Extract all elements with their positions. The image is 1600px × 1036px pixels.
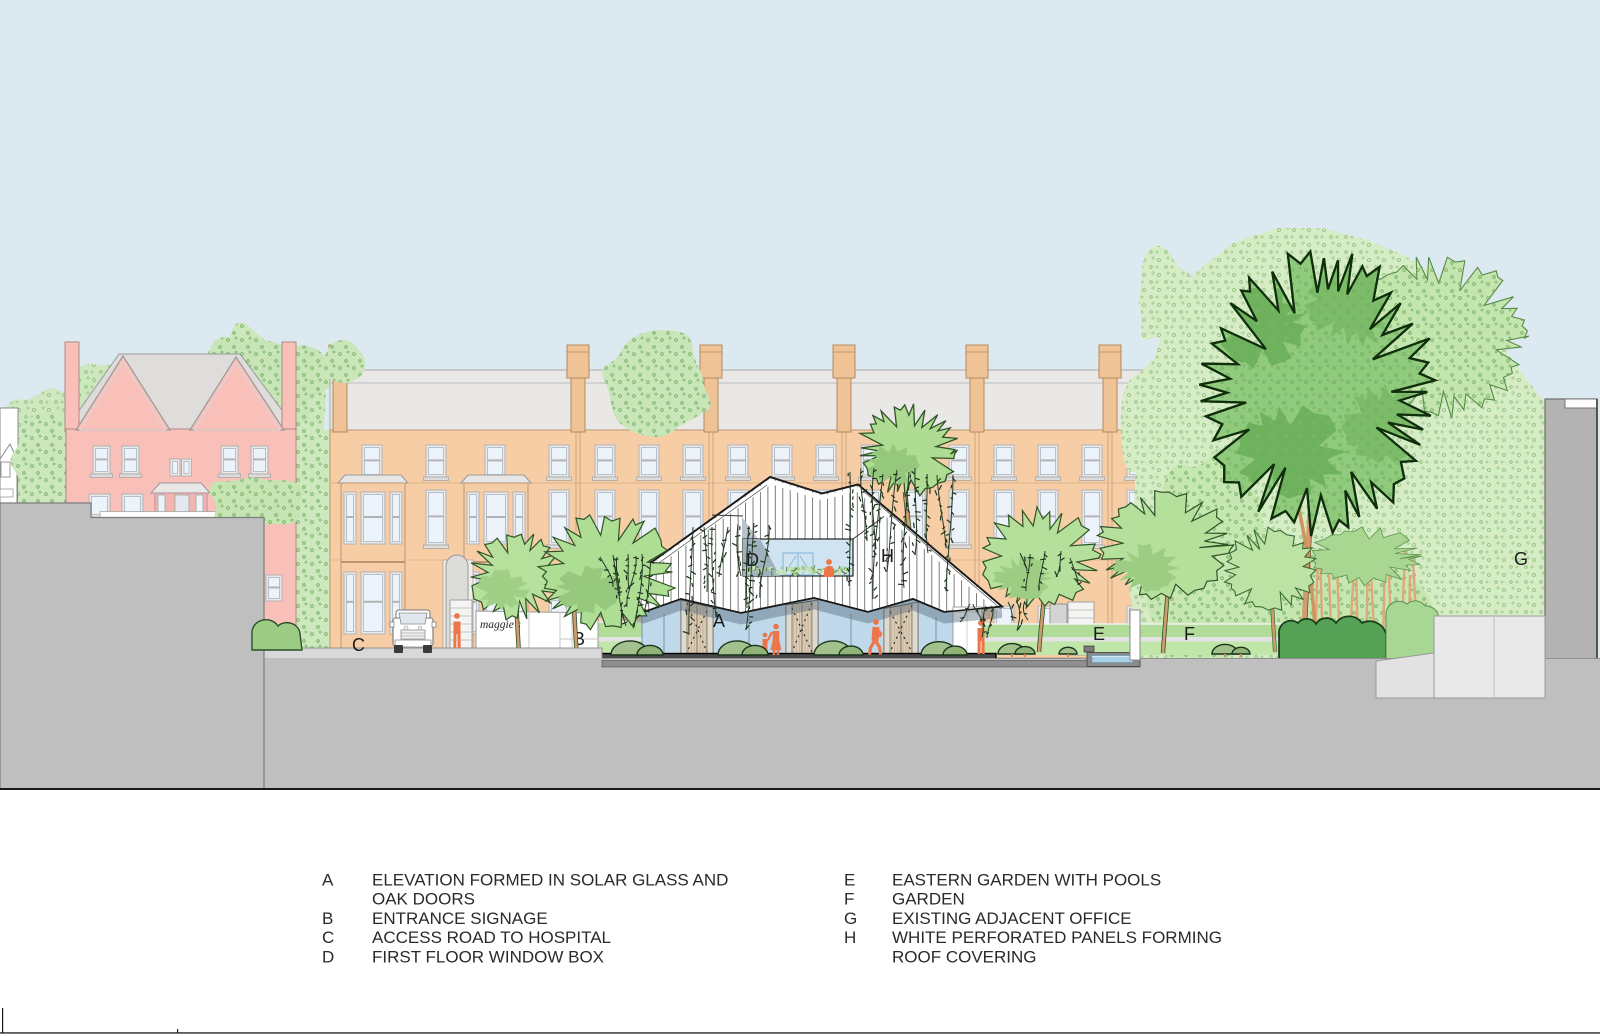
svg-text:D: D — [322, 948, 334, 967]
svg-text:E: E — [844, 870, 855, 889]
svg-text:C: C — [322, 928, 334, 947]
svg-text:G: G — [844, 909, 857, 928]
svg-text:ROOF COVERING: ROOF COVERING — [892, 948, 1037, 967]
svg-text:A: A — [713, 611, 725, 631]
svg-text:ELEVATION FORMED IN SOLAR GLAS: ELEVATION FORMED IN SOLAR GLASS AND — [372, 870, 728, 889]
svg-text:F: F — [1184, 624, 1195, 644]
svg-text:H: H — [844, 928, 856, 947]
svg-text:G: G — [1514, 549, 1528, 569]
svg-text:C: C — [352, 635, 365, 655]
svg-text:B: B — [322, 909, 333, 928]
svg-text:F: F — [844, 890, 854, 909]
svg-text:ENTRANCE SIGNAGE: ENTRANCE SIGNAGE — [372, 909, 548, 928]
svg-text:WHITE PERFORATED PANELS FORMIN: WHITE PERFORATED PANELS FORMING — [892, 928, 1222, 947]
svg-text:OAK DOORS: OAK DOORS — [372, 890, 475, 909]
svg-text:GARDEN: GARDEN — [892, 890, 965, 909]
svg-text:EXISTING ADJACENT OFFICE: EXISTING ADJACENT OFFICE — [892, 909, 1132, 928]
svg-text:ACCESS ROAD TO HOSPITAL: ACCESS ROAD TO HOSPITAL — [372, 928, 611, 947]
svg-text:FIRST FLOOR WINDOW BOX: FIRST FLOOR WINDOW BOX — [372, 948, 604, 967]
svg-text:H: H — [881, 546, 894, 566]
svg-text:EASTERN GARDEN WITH POOLS: EASTERN GARDEN WITH POOLS — [892, 870, 1161, 889]
svg-text:A: A — [322, 870, 334, 889]
svg-text:E: E — [1093, 624, 1105, 644]
